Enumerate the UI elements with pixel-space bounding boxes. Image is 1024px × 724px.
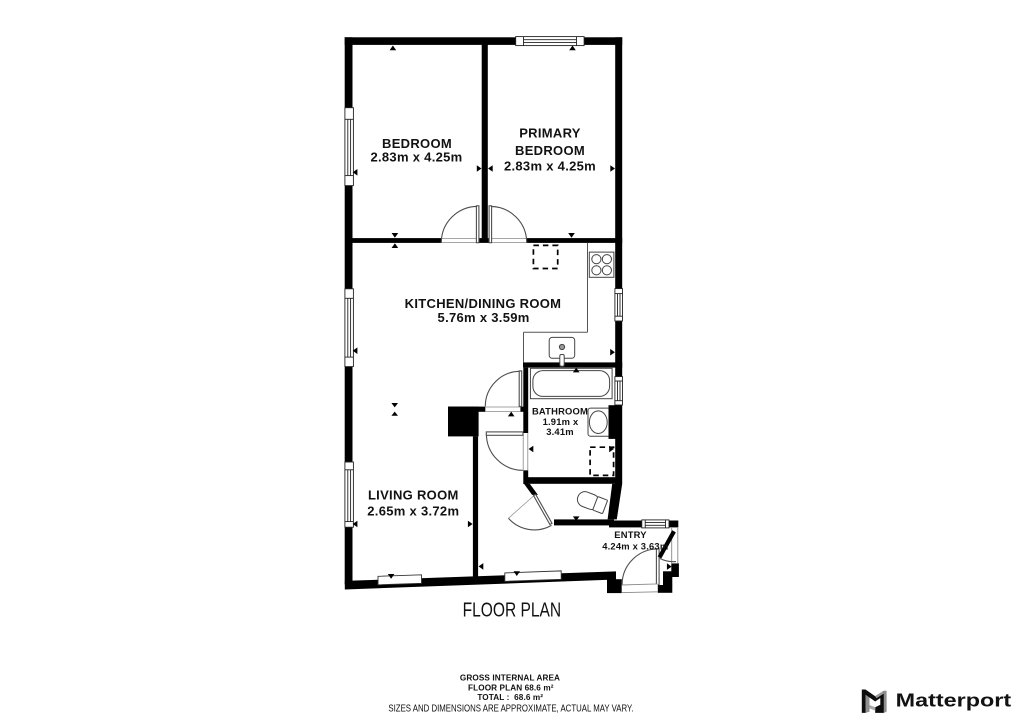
svg-text:KITCHEN/DINING ROOM: KITCHEN/DINING ROOM [405,296,562,311]
svg-text:SIZES AND DIMENSIONS ARE APPRO: SIZES AND DIMENSIONS ARE APPROXIMATE, AC… [388,704,633,715]
svg-text:ENTRY: ENTRY [614,529,647,540]
svg-text:3.41m: 3.41m [546,426,574,437]
svg-text:FLOOR PLAN 68.6 m²: FLOOR PLAN 68.6 m² [468,683,554,692]
svg-text:2.83m x 4.25m: 2.83m x 4.25m [504,158,596,173]
svg-text:2.65m x 3.72m: 2.65m x 3.72m [367,503,459,518]
svg-text:5.76m x 3.59m: 5.76m x 3.59m [438,310,530,325]
svg-text:GROSS INTERNAL AREA: GROSS INTERNAL AREA [460,674,560,683]
svg-text:2.83m x 4.25m: 2.83m x 4.25m [370,150,462,165]
svg-text:TOTAL : 68.6 m²: TOTAL : 68.6 m² [477,693,543,702]
svg-text:FLOOR PLAN: FLOOR PLAN [463,600,562,622]
svg-text:LIVING ROOM: LIVING ROOM [368,487,459,502]
svg-text:PRIMARY: PRIMARY [519,125,581,140]
svg-text:Matterport: Matterport [896,690,1012,711]
svg-text:4.24m x 3.63m: 4.24m x 3.63m [602,540,668,551]
svg-text:BEDROOM: BEDROOM [515,143,585,158]
